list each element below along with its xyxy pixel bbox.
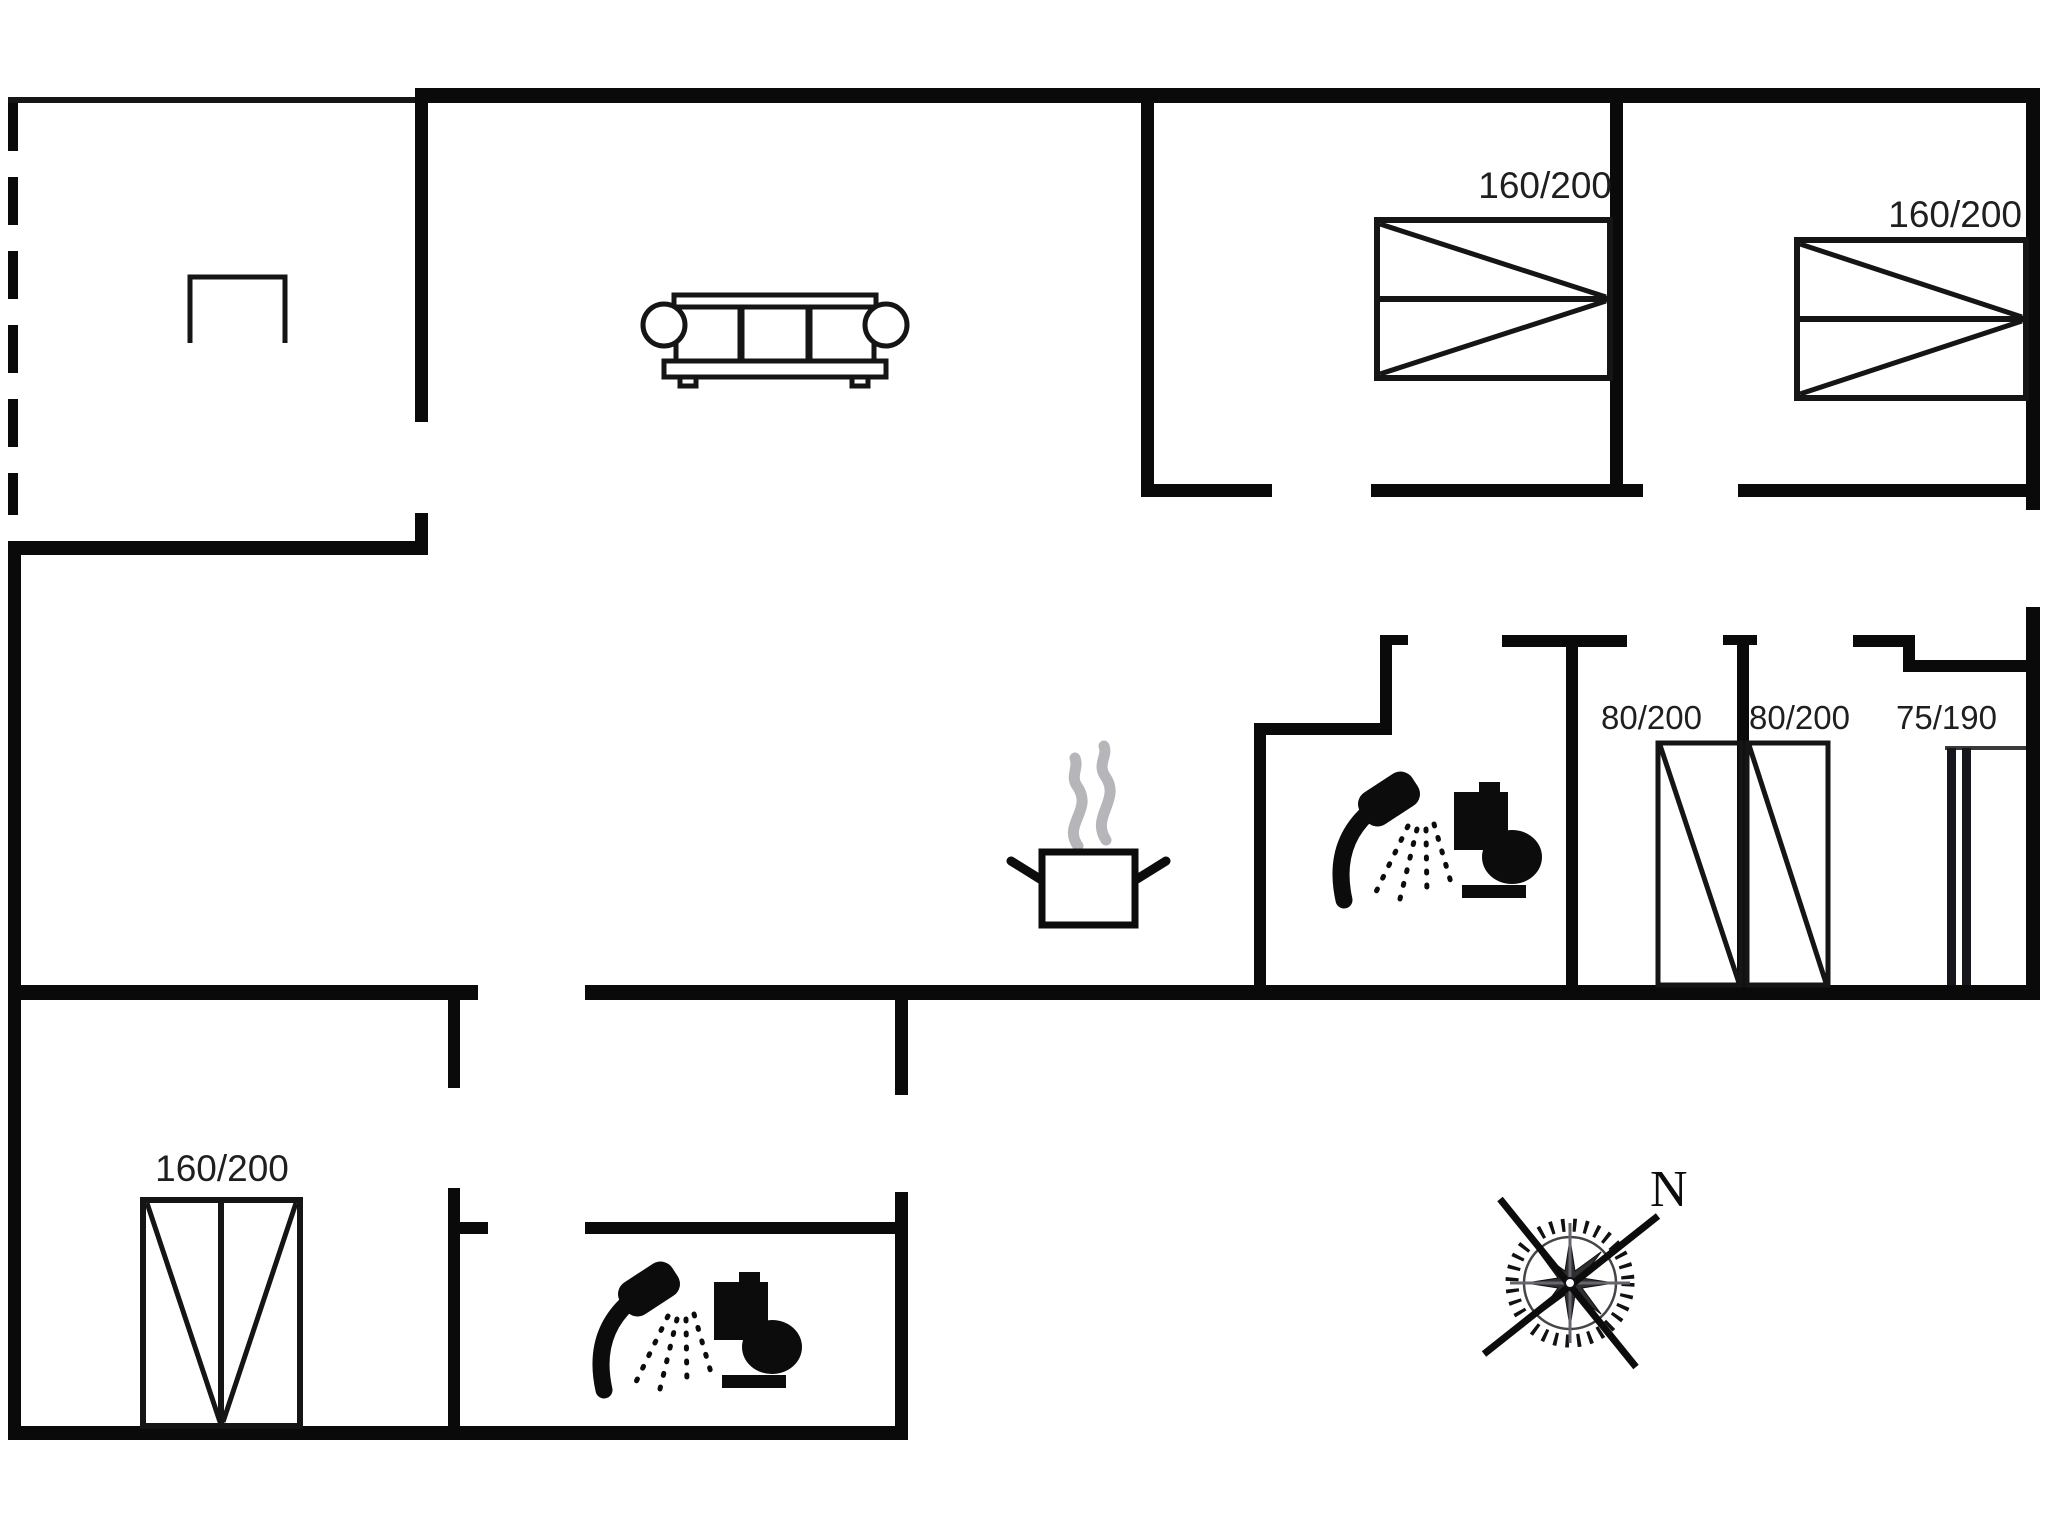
tall-cupboard-icon: [1945, 748, 2026, 985]
closet1-size-label: 80/200: [1601, 701, 1702, 734]
walls: [8, 88, 2040, 1440]
floor-plan-drawing: [0, 0, 2048, 1536]
bedroom1-left-wall: [1141, 95, 1154, 497]
bath1-step-vertical: [1380, 635, 1392, 735]
wardrobe-icon-1: [1658, 743, 1741, 985]
terrace-right-wall-stub: [415, 513, 428, 555]
shower-spray-icon: [1374, 824, 1452, 899]
terrace-furniture-icon: [190, 277, 285, 343]
floor-plan: 160/200 160/200 160/200 80/200 80/200 75…: [0, 0, 2048, 1536]
bathroom2-fixtures: [601, 1256, 802, 1390]
bath1-left-wall: [1254, 723, 1266, 1000]
bedroom2-bottom-wall-a: [1616, 484, 1643, 497]
mid-wall-left: [8, 985, 478, 1000]
bath1-top-wall: [1502, 635, 1627, 647]
bedroom1-bottom-wall-a: [1141, 484, 1272, 497]
bathroom-fixtures: [1341, 766, 1542, 900]
double-bed-icon-1: [1377, 220, 1610, 378]
bath1-door-tick: [1380, 635, 1408, 645]
steam-icon: [1101, 746, 1110, 840]
terrace-top-edge: [8, 97, 420, 103]
nook-step-wall: [1903, 660, 2040, 672]
compass-rose-icon: [1484, 1199, 1658, 1367]
bath2-top-wall: [585, 1222, 908, 1234]
bedroom1-bottom-wall-b: [1371, 484, 1616, 497]
sofa-icon: [643, 295, 907, 386]
bath1-step-wall: [1254, 723, 1392, 735]
wardrobe-icon-2: [1747, 743, 1828, 985]
double-bed-icon-3: [143, 1200, 300, 1426]
terrace-bottom-wall: [8, 541, 428, 555]
steam-icon: [1073, 758, 1082, 846]
cooking-pot-icon: [1011, 746, 1166, 925]
closet3-size-label: 75/190: [1896, 701, 1997, 734]
double-bed-icon-2: [1797, 240, 2026, 398]
bed2-size-label: 160/200: [1822, 196, 2022, 233]
bath1-right-wall: [1566, 635, 1578, 985]
bed3-size-label: 160/200: [122, 1150, 322, 1187]
wing-right-wall-upper: [895, 985, 908, 1095]
toilet-icon: [1454, 782, 1542, 898]
bedroom2-bottom-wall-b: [1738, 484, 2028, 497]
shower-icon: [1341, 813, 1368, 900]
bed1-size-label: 160/200: [1412, 167, 1612, 204]
closet-divider-tick: [1723, 635, 1757, 645]
terrace-right-wall: [415, 97, 428, 422]
wall-top: [415, 88, 2040, 103]
bedroom3-wall-upper: [448, 990, 460, 1088]
bath2-wall-stub: [448, 1222, 488, 1234]
closet2-size-label: 80/200: [1749, 701, 1850, 734]
north-label: N: [1650, 1164, 1688, 1216]
